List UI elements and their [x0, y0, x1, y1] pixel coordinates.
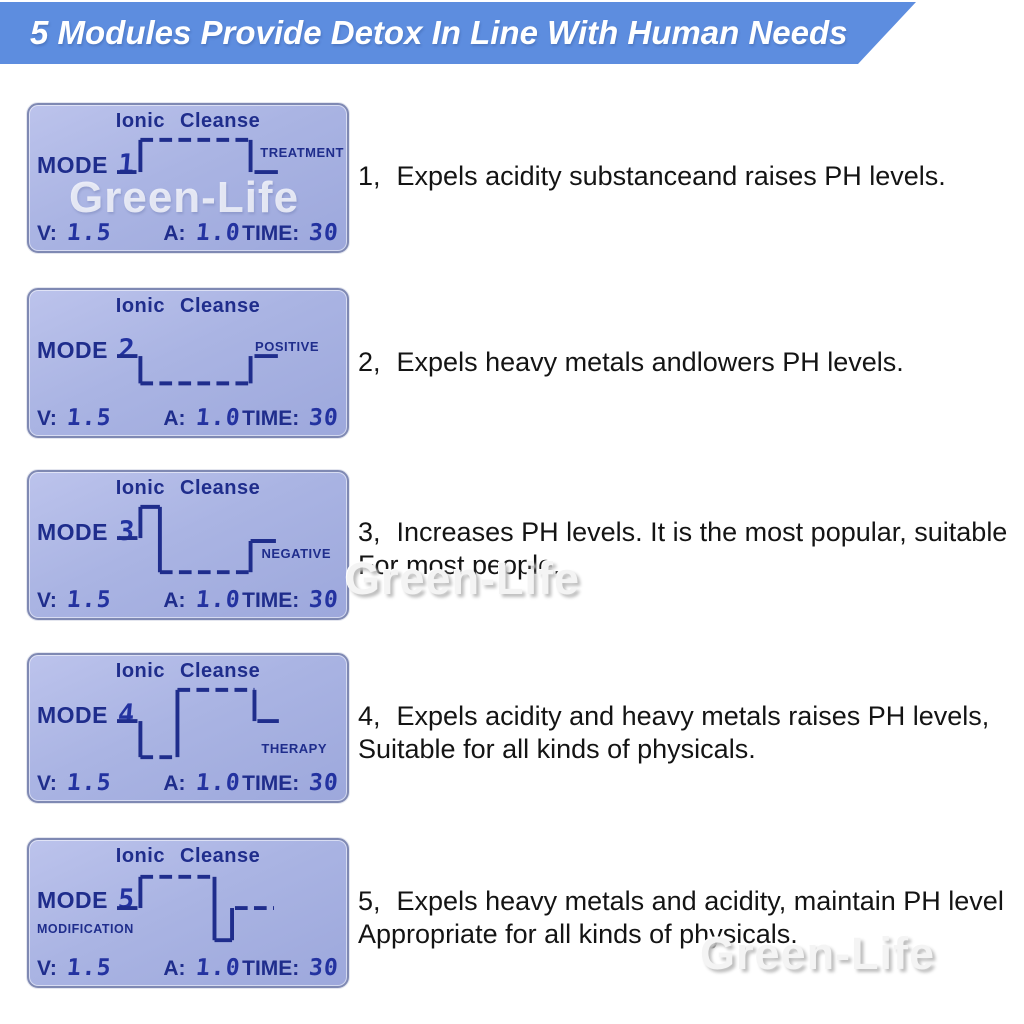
description-number: 4, [358, 701, 381, 731]
lcd-status-row: V:1.5 A:1.0 TIME:30 [37, 220, 339, 246]
mode-label: MODE [37, 152, 108, 179]
voltage-label: V: [37, 589, 57, 613]
time-value: 30 [308, 220, 340, 246]
mode-description-3: 3,Increases PH levels. It is the most po… [358, 516, 1020, 582]
time-value: 30 [308, 770, 340, 796]
lcd-screen-mode-3: Ionic Cleanse MODE 3 NEGATIVE V:1.5 A:1.… [27, 470, 349, 620]
amperage-label: A: [163, 772, 185, 796]
lcd-title: Ionic Cleanse [29, 660, 347, 683]
amperage-readout: A:1.0 [163, 405, 240, 431]
time-readout: TIME:30 [242, 405, 339, 431]
amperage-value: 1.0 [194, 587, 241, 613]
amperage-readout: A:1.0 [163, 220, 240, 246]
description-text: Expels acidity substanceand raises PH le… [397, 161, 946, 191]
description-number: 3, [358, 517, 381, 547]
time-label: TIME: [242, 957, 299, 981]
voltage-value: 1.5 [66, 955, 113, 981]
amperage-readout: A:1.0 [163, 587, 240, 613]
voltage-readout: V:1.5 [37, 955, 111, 981]
voltage-label: V: [37, 222, 57, 246]
voltage-label: V: [37, 957, 57, 981]
amperage-value: 1.0 [194, 770, 241, 796]
waveform-graphic [117, 502, 351, 580]
voltage-readout: V:1.5 [37, 405, 111, 431]
amperage-label: A: [163, 407, 185, 431]
amperage-label: A: [163, 589, 185, 613]
amperage-value: 1.0 [194, 220, 241, 246]
lcd-title: Ionic Cleanse [29, 295, 347, 318]
mode-description-2: 2,Expels heavy metals andlowers PH level… [358, 346, 1020, 379]
mode-label: MODE [37, 702, 108, 729]
voltage-readout: V:1.5 [37, 220, 111, 246]
voltage-value: 1.5 [66, 770, 113, 796]
time-value: 30 [308, 587, 340, 613]
page-title: 5 Modules Provide Detox In Line With Hum… [0, 2, 916, 64]
lcd-title: Ionic Cleanse [29, 477, 347, 500]
amperage-readout: A:1.0 [163, 955, 240, 981]
time-label: TIME: [242, 772, 299, 796]
description-text: Expels acidity and heavy metals raises P… [358, 701, 989, 764]
mode-tag: POSITIVE [255, 339, 319, 354]
amperage-value: 1.0 [194, 955, 241, 981]
amperage-label: A: [163, 222, 185, 246]
time-label: TIME: [242, 222, 299, 246]
description-number: 1, [358, 161, 381, 191]
mode-tag: TREATMENT [260, 145, 344, 160]
voltage-value: 1.5 [66, 587, 113, 613]
lcd-title: Ionic Cleanse [29, 845, 347, 868]
mode-tag: NEGATIVE [262, 546, 332, 561]
mode-tag: THERAPY [261, 741, 327, 756]
time-readout: TIME:30 [242, 770, 339, 796]
voltage-readout: V:1.5 [37, 770, 111, 796]
waveform-graphic [117, 320, 351, 398]
header-banner: 5 Modules Provide Detox In Line With Hum… [0, 2, 916, 64]
time-label: TIME: [242, 589, 299, 613]
mode-tag: MODIFICATION [37, 922, 134, 936]
voltage-value: 1.5 [66, 405, 113, 431]
lcd-screen-mode-5: Ionic Cleanse MODE 5 MODIFICATION V:1.5 … [27, 838, 349, 988]
amperage-value: 1.0 [194, 405, 241, 431]
lcd-status-row: V:1.5 A:1.0 TIME:30 [37, 770, 339, 796]
mode-label: MODE [37, 519, 108, 546]
time-label: TIME: [242, 407, 299, 431]
voltage-label: V: [37, 772, 57, 796]
waveform-graphic [117, 870, 351, 948]
description-number: 5, [358, 886, 381, 916]
description-text: Expels heavy metals andlowers PH levels. [397, 347, 904, 377]
time-readout: TIME:30 [242, 955, 339, 981]
lcd-status-row: V:1.5 A:1.0 TIME:30 [37, 405, 339, 431]
time-value: 30 [308, 405, 340, 431]
lcd-screen-mode-1: Ionic Cleanse MODE 1 TREATMENT Green-Lif… [27, 103, 349, 253]
time-value: 30 [308, 955, 340, 981]
lcd-screen-mode-4: Ionic Cleanse MODE 4 THERAPY V:1.5 A:1.0… [27, 653, 349, 803]
time-readout: TIME:30 [242, 220, 339, 246]
lcd-title: Ionic Cleanse [29, 110, 347, 133]
voltage-readout: V:1.5 [37, 587, 111, 613]
lcd-status-row: V:1.5 A:1.0 TIME:30 [37, 587, 339, 613]
lcd-status-row: V:1.5 A:1.0 TIME:30 [37, 955, 339, 981]
mode-description-4: 4,Expels acidity and heavy metals raises… [358, 700, 1020, 766]
lcd-screen-mode-2: Ionic Cleanse MODE 2 POSITIVE V:1.5 A:1.… [27, 288, 349, 438]
description-text: Increases PH levels. It is the most popu… [358, 517, 1007, 580]
mode-description-1: 1,Expels acidity substanceand raises PH … [358, 160, 1020, 193]
amperage-label: A: [163, 957, 185, 981]
mode-label: MODE [37, 337, 108, 364]
mode-description-5: 5,Expels heavy metals and acidity, maint… [358, 885, 1020, 951]
time-readout: TIME:30 [242, 587, 339, 613]
description-number: 2, [358, 347, 381, 377]
description-text: Expels heavy metals and acidity, maintai… [358, 886, 1004, 949]
mode-label: MODE [37, 887, 108, 914]
amperage-readout: A:1.0 [163, 770, 240, 796]
voltage-label: V: [37, 407, 57, 431]
voltage-value: 1.5 [66, 220, 113, 246]
